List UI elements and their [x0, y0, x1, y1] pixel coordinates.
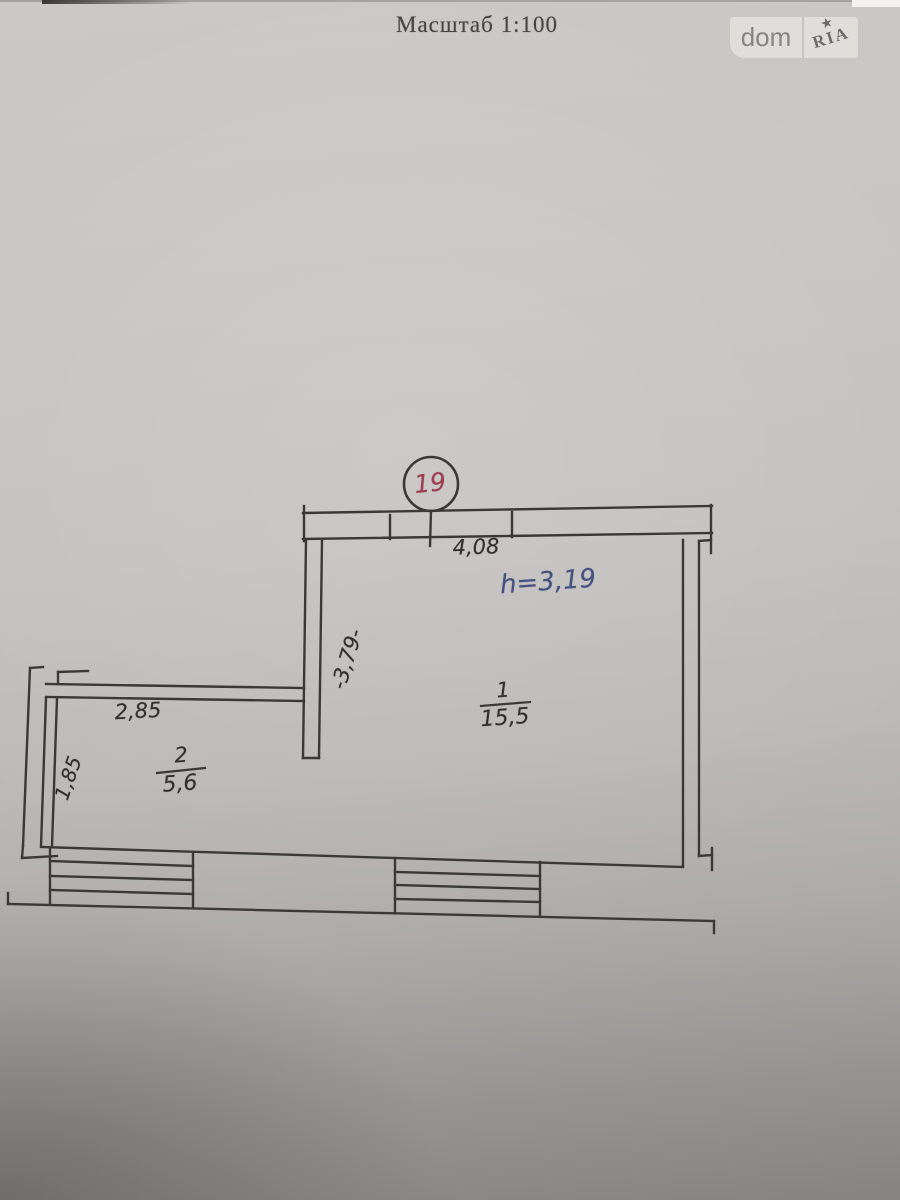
- floor-plan-drawing: [0, 0, 900, 1200]
- room1-number: 1: [495, 678, 510, 703]
- room2-top-wall: [46, 671, 304, 701]
- window-2: [395, 858, 540, 916]
- floorplan-photo: Масштаб 1:100 dom ★ RIA: [0, 0, 900, 1200]
- dimension-room1-width: 4,08: [452, 534, 500, 560]
- entrance-number-label: 19: [413, 467, 448, 499]
- room1-right-wall: [683, 540, 712, 870]
- dimension-room2-width: 2,85: [114, 698, 162, 724]
- room2-number: 2: [173, 743, 188, 768]
- window-1: [50, 848, 193, 908]
- top-wall: [303, 505, 712, 553]
- room-label-fraction-lines: [157, 702, 530, 773]
- bottom-exterior-wall: [8, 847, 714, 933]
- room1-left-wall: [303, 540, 322, 758]
- room2-area: 5,6: [162, 770, 199, 797]
- room1-area: 15,5: [480, 704, 531, 732]
- room2-left-wall: [41, 698, 57, 846]
